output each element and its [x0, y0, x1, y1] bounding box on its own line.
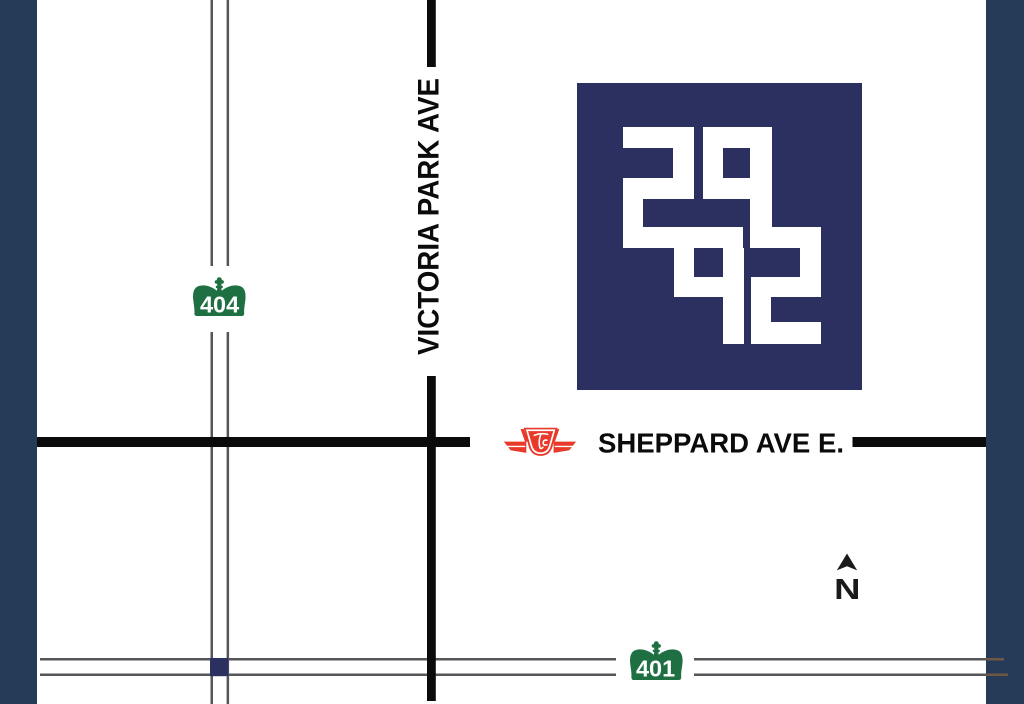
svg-text:N: N: [834, 573, 860, 605]
svg-text:404: 404: [200, 292, 239, 318]
svg-text:SHEPPARD AVE E.: SHEPPARD AVE E.: [598, 428, 844, 459]
svg-text:401: 401: [636, 656, 675, 682]
svg-text:VICTORIA PARK AVE: VICTORIA PARK AVE: [413, 78, 446, 355]
